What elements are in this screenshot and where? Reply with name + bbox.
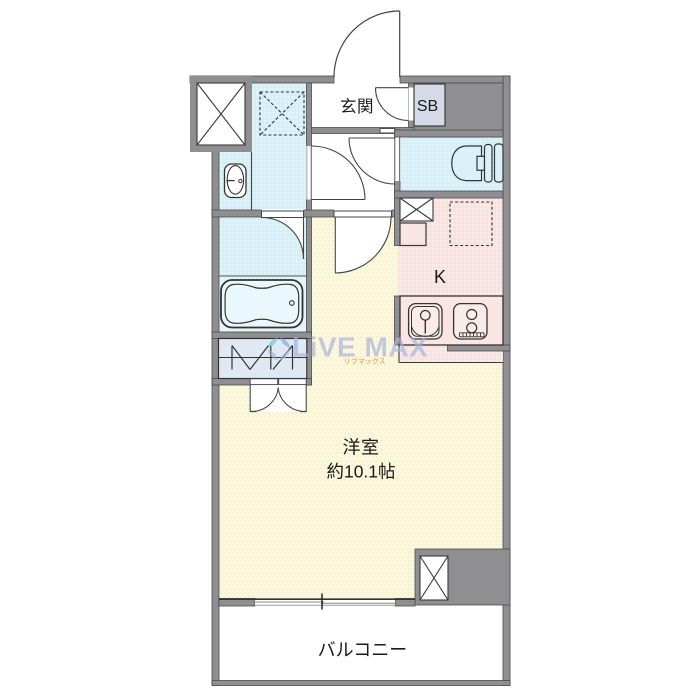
- svg-text:K: K: [434, 267, 446, 287]
- svg-text:約10.1帖: 約10.1帖: [326, 462, 395, 482]
- svg-text:洋室: 洋室: [343, 438, 380, 458]
- svg-text:SB: SB: [417, 98, 438, 115]
- svg-text:バルコニー: バルコニー: [318, 640, 408, 660]
- svg-text:玄関: 玄関: [340, 97, 374, 116]
- svg-text:リブマックス: リブマックス: [344, 356, 386, 365]
